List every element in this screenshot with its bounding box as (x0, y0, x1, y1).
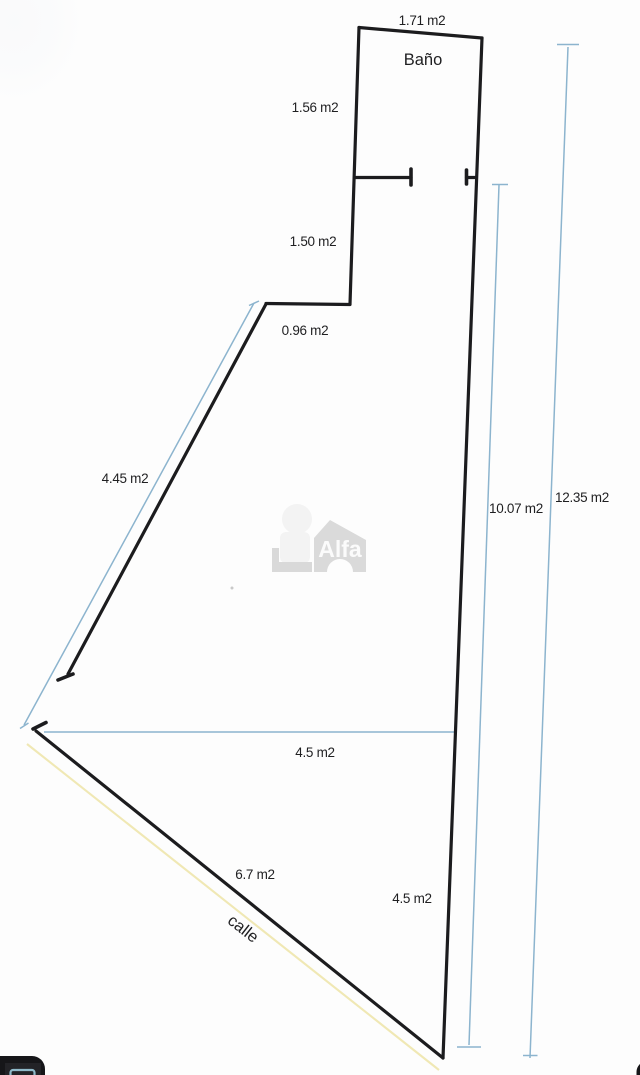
svg-text:Alfa: Alfa (318, 536, 362, 562)
svg-text:4.45 m2: 4.45 m2 (102, 471, 149, 486)
svg-text:4.5 m2: 4.5 m2 (295, 745, 334, 760)
svg-text:1.56 m2: 1.56 m2 (292, 100, 339, 115)
svg-text:Baño: Baño (404, 51, 443, 69)
svg-text:12.35 m2: 12.35 m2 (555, 490, 609, 505)
svg-text:0.96 m2: 0.96 m2 (282, 323, 329, 338)
svg-text:1.50 m2: 1.50 m2 (290, 234, 337, 249)
svg-text:4.5 m2: 4.5 m2 (392, 891, 431, 906)
svg-text:10.07 m2: 10.07 m2 (489, 501, 543, 516)
svg-text:1.71 m2: 1.71 m2 (399, 13, 446, 28)
svg-text:6.7 m2: 6.7 m2 (235, 867, 274, 882)
